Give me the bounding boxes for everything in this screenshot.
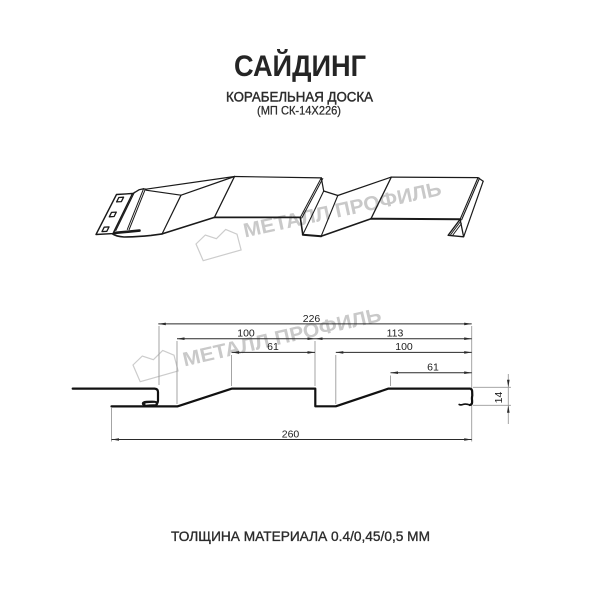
- svg-text:61: 61: [427, 361, 439, 373]
- svg-text:14: 14: [493, 392, 505, 404]
- svg-text:САЙДИНГ: САЙДИНГ: [234, 49, 366, 83]
- svg-text:ТОЛЩИНА МАТЕРИАЛА 0.4/0,45/0,5: ТОЛЩИНА МАТЕРИАЛА 0.4/0,45/0,5 ММ: [171, 528, 430, 544]
- svg-text:226: 226: [303, 313, 321, 325]
- svg-text:КОРАБЕЛЬНАЯ ДОСКА: КОРАБЕЛЬНАЯ ДОСКА: [226, 89, 373, 105]
- svg-text:113: 113: [387, 327, 404, 339]
- svg-text:100: 100: [395, 341, 413, 353]
- svg-text:(МП СК-14Х226): (МП СК-14Х226): [257, 105, 341, 118]
- svg-text:100: 100: [237, 327, 255, 339]
- svg-text:61: 61: [267, 341, 279, 353]
- svg-text:260: 260: [282, 429, 300, 441]
